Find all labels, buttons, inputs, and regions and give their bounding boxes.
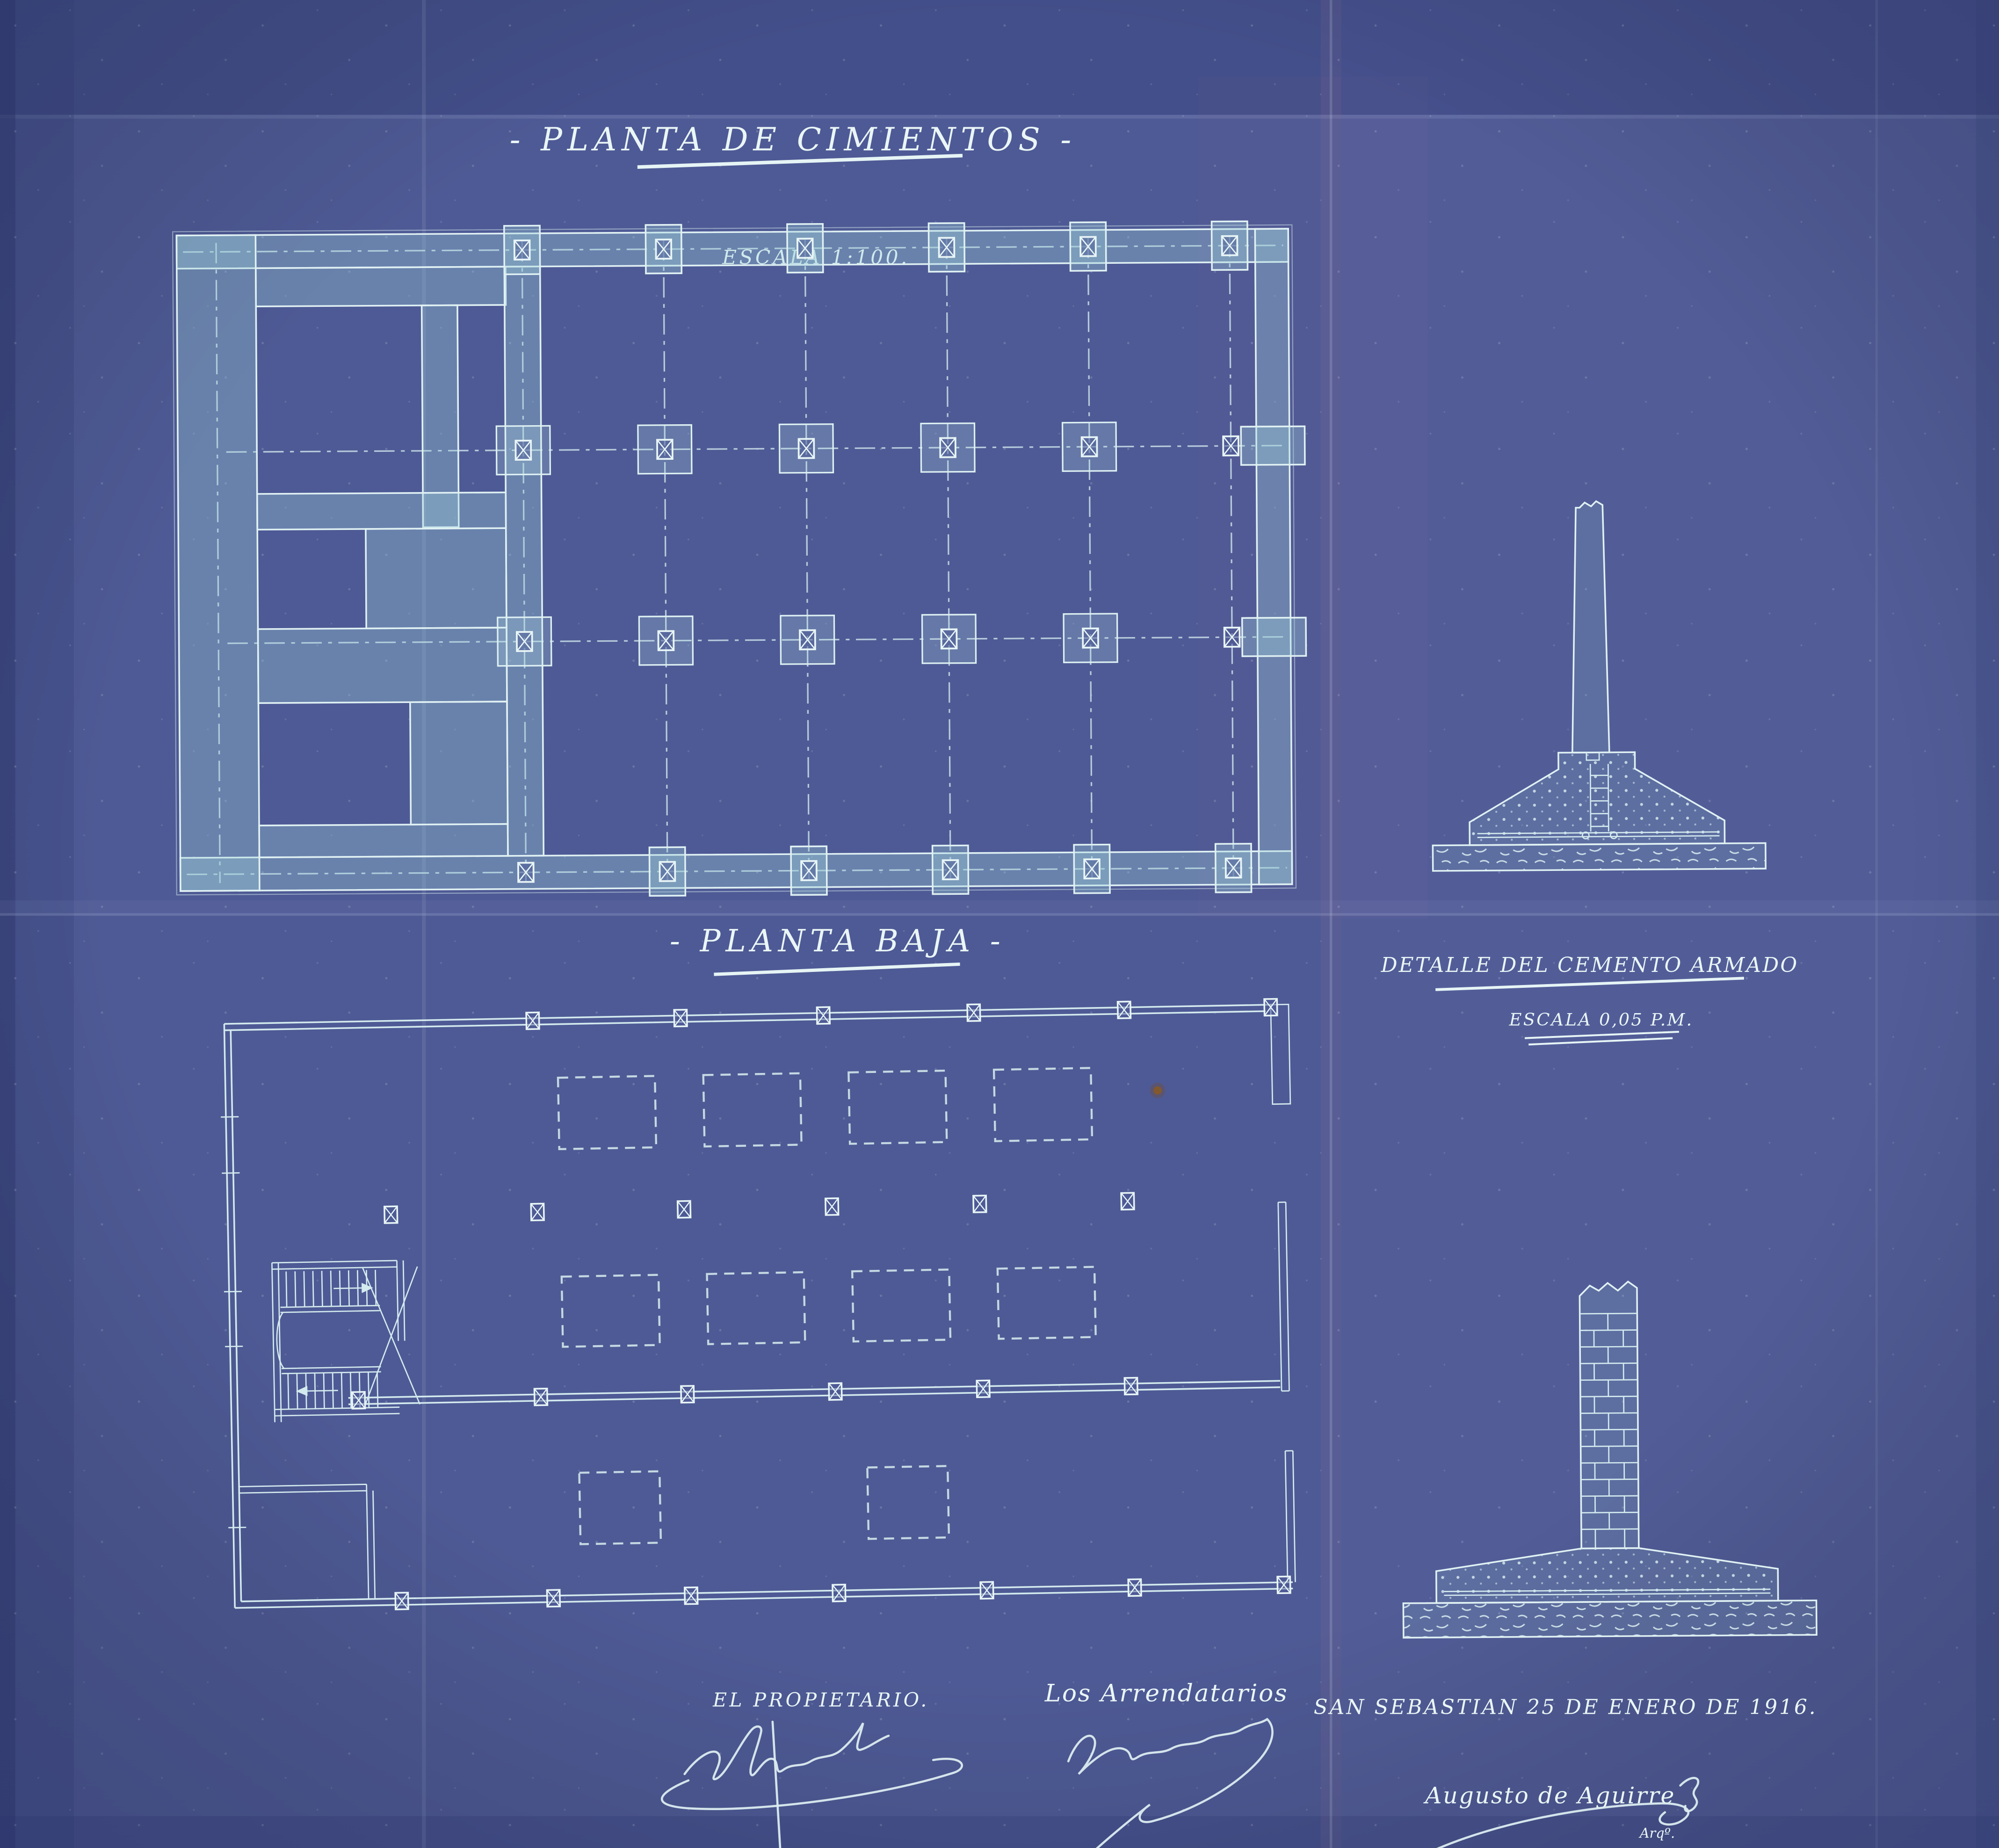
column-marker-icon xyxy=(1080,237,1096,256)
column-marker-icon xyxy=(657,440,673,459)
column-marker-icon xyxy=(515,441,531,460)
column-marker-icon xyxy=(826,1198,839,1215)
column-marker-icon xyxy=(943,860,958,879)
column-marker-icon xyxy=(973,1196,986,1212)
blueprint-drawing: - PLANTA DE CIMIENTOS - ESCALA 1:100. - … xyxy=(0,0,1999,1848)
column-marker-icon xyxy=(939,238,954,257)
column-marker-icon xyxy=(942,629,957,648)
column-marker-icon xyxy=(1264,999,1277,1016)
paper-stain xyxy=(1150,1083,1166,1098)
column-marker-icon xyxy=(534,1389,547,1406)
column-marker-icon xyxy=(798,439,814,458)
column-marker-icon xyxy=(656,239,671,259)
detail-column-shaft xyxy=(1571,501,1609,753)
ground-floor-title: - PLANTA BAJA - xyxy=(670,923,1006,959)
detail-brick-pier xyxy=(1579,1282,1639,1549)
column-marker-icon xyxy=(1083,629,1098,648)
column-marker-icon xyxy=(977,1380,990,1397)
column-marker-icon xyxy=(1222,236,1238,255)
column-marker-icon xyxy=(1121,1193,1134,1210)
detail-base-slab xyxy=(1433,843,1766,871)
column-marker-icon xyxy=(800,630,815,649)
column-marker-icon xyxy=(833,1585,846,1602)
column-marker-icon xyxy=(1118,1001,1131,1018)
blueprint-sheet: - PLANTA DE CIMIENTOS - ESCALA 1:100. - … xyxy=(0,0,1999,1848)
foundation-plan-title: - PLANTA DE CIMIENTOS - xyxy=(510,122,1077,159)
column-marker-icon xyxy=(1277,1576,1290,1593)
column-marker-icon xyxy=(940,438,956,457)
column-marker-icon xyxy=(531,1203,544,1220)
column-marker-icon xyxy=(518,863,534,882)
column-marker-icon xyxy=(1124,1378,1137,1395)
column-marker-icon xyxy=(797,239,813,258)
column-marker-icon xyxy=(1224,628,1240,647)
architect-title: Arqº. xyxy=(1638,1825,1675,1841)
column-marker-icon xyxy=(681,1386,694,1403)
column-marker-icon xyxy=(1084,859,1100,878)
column-marker-icon xyxy=(980,1582,993,1599)
column-marker-icon xyxy=(384,1206,398,1223)
owner-label: EL PROPIETARIO. xyxy=(712,1689,929,1711)
column-marker-icon xyxy=(526,1012,539,1029)
column-marker-icon xyxy=(395,1593,408,1609)
column-marker-icon xyxy=(829,1383,842,1400)
detail-base-slab xyxy=(1403,1601,1817,1638)
detail-scale: ESCALA 0,05 P.M. xyxy=(1509,1009,1694,1029)
column-marker-icon xyxy=(352,1392,365,1409)
column-marker-icon xyxy=(659,862,675,881)
column-marker-icon xyxy=(547,1590,560,1607)
column-marker-icon xyxy=(658,631,674,650)
column-marker-icon xyxy=(517,632,532,651)
column-marker-icon xyxy=(817,1007,830,1024)
column-marker-icon xyxy=(1082,437,1097,457)
column-marker-icon xyxy=(674,1010,687,1027)
column-marker-icon xyxy=(801,861,817,880)
column-marker-icon xyxy=(514,240,530,260)
column-marker-icon xyxy=(1223,436,1239,456)
column-marker-icon xyxy=(678,1201,691,1218)
column-marker-icon xyxy=(1226,858,1241,877)
column-marker-icon xyxy=(685,1587,698,1604)
column-marker-icon xyxy=(967,1004,980,1021)
place-date: SAN SEBASTIAN 25 DE ENERO DE 1916. xyxy=(1314,1696,1818,1719)
detail-title: DETALLE DEL CEMENTO ARMADO xyxy=(1381,954,1799,977)
column-marker-icon xyxy=(1128,1579,1141,1596)
tenants-label: Los Arrendatarios xyxy=(1044,1679,1289,1707)
